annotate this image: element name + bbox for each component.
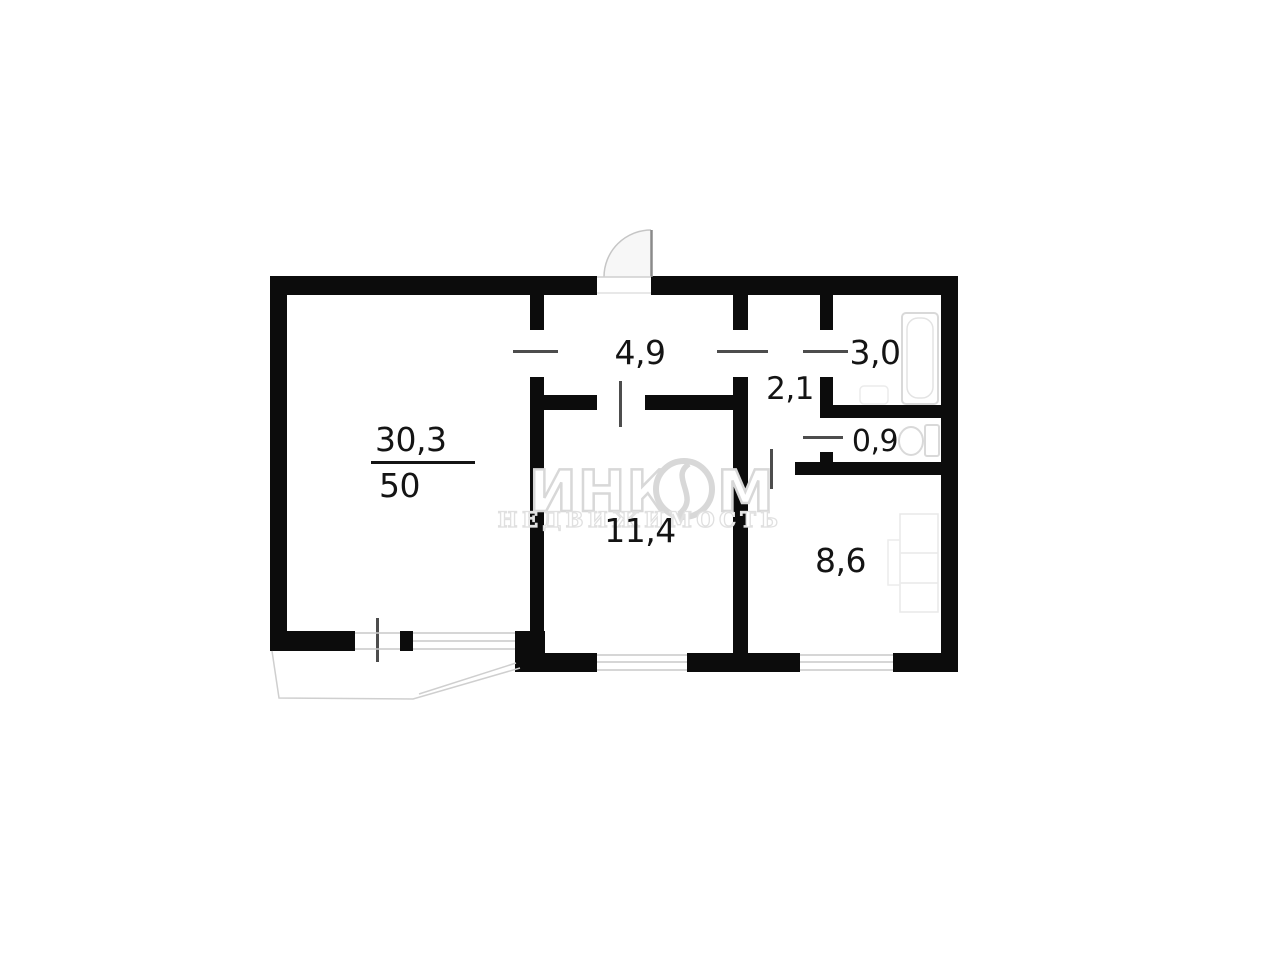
room-label-living: 30,3 50 [371,423,475,502]
balcony-outline [272,651,520,699]
room-label-kitchen: 8,6 [788,544,893,577]
kitchen-counter-icon [888,514,938,612]
room-label-room2: 11,4 [575,514,705,547]
living-area-value: 30,3 [371,423,475,464]
plan-graphics: ИНК М НЕДВИЖИМОСТЬ [0,0,1280,979]
window-living [355,633,515,649]
window-kitchen [800,655,893,670]
washbasin-icon [860,386,888,404]
floor-plan: ИНК М НЕДВИЖИМОСТЬ 4,9 2,1 3,0 0,9 11,4 … [0,0,1280,979]
room-label-wc: 0,9 [830,427,920,457]
room-label-hallway: 4,9 [595,336,685,369]
window-room2 [597,655,687,670]
entrance-door-icon [597,230,652,293]
room-label-corridor: 2,1 [745,374,835,405]
room-label-bathroom: 3,0 [830,336,920,369]
living-total-value: 50 [371,464,475,502]
